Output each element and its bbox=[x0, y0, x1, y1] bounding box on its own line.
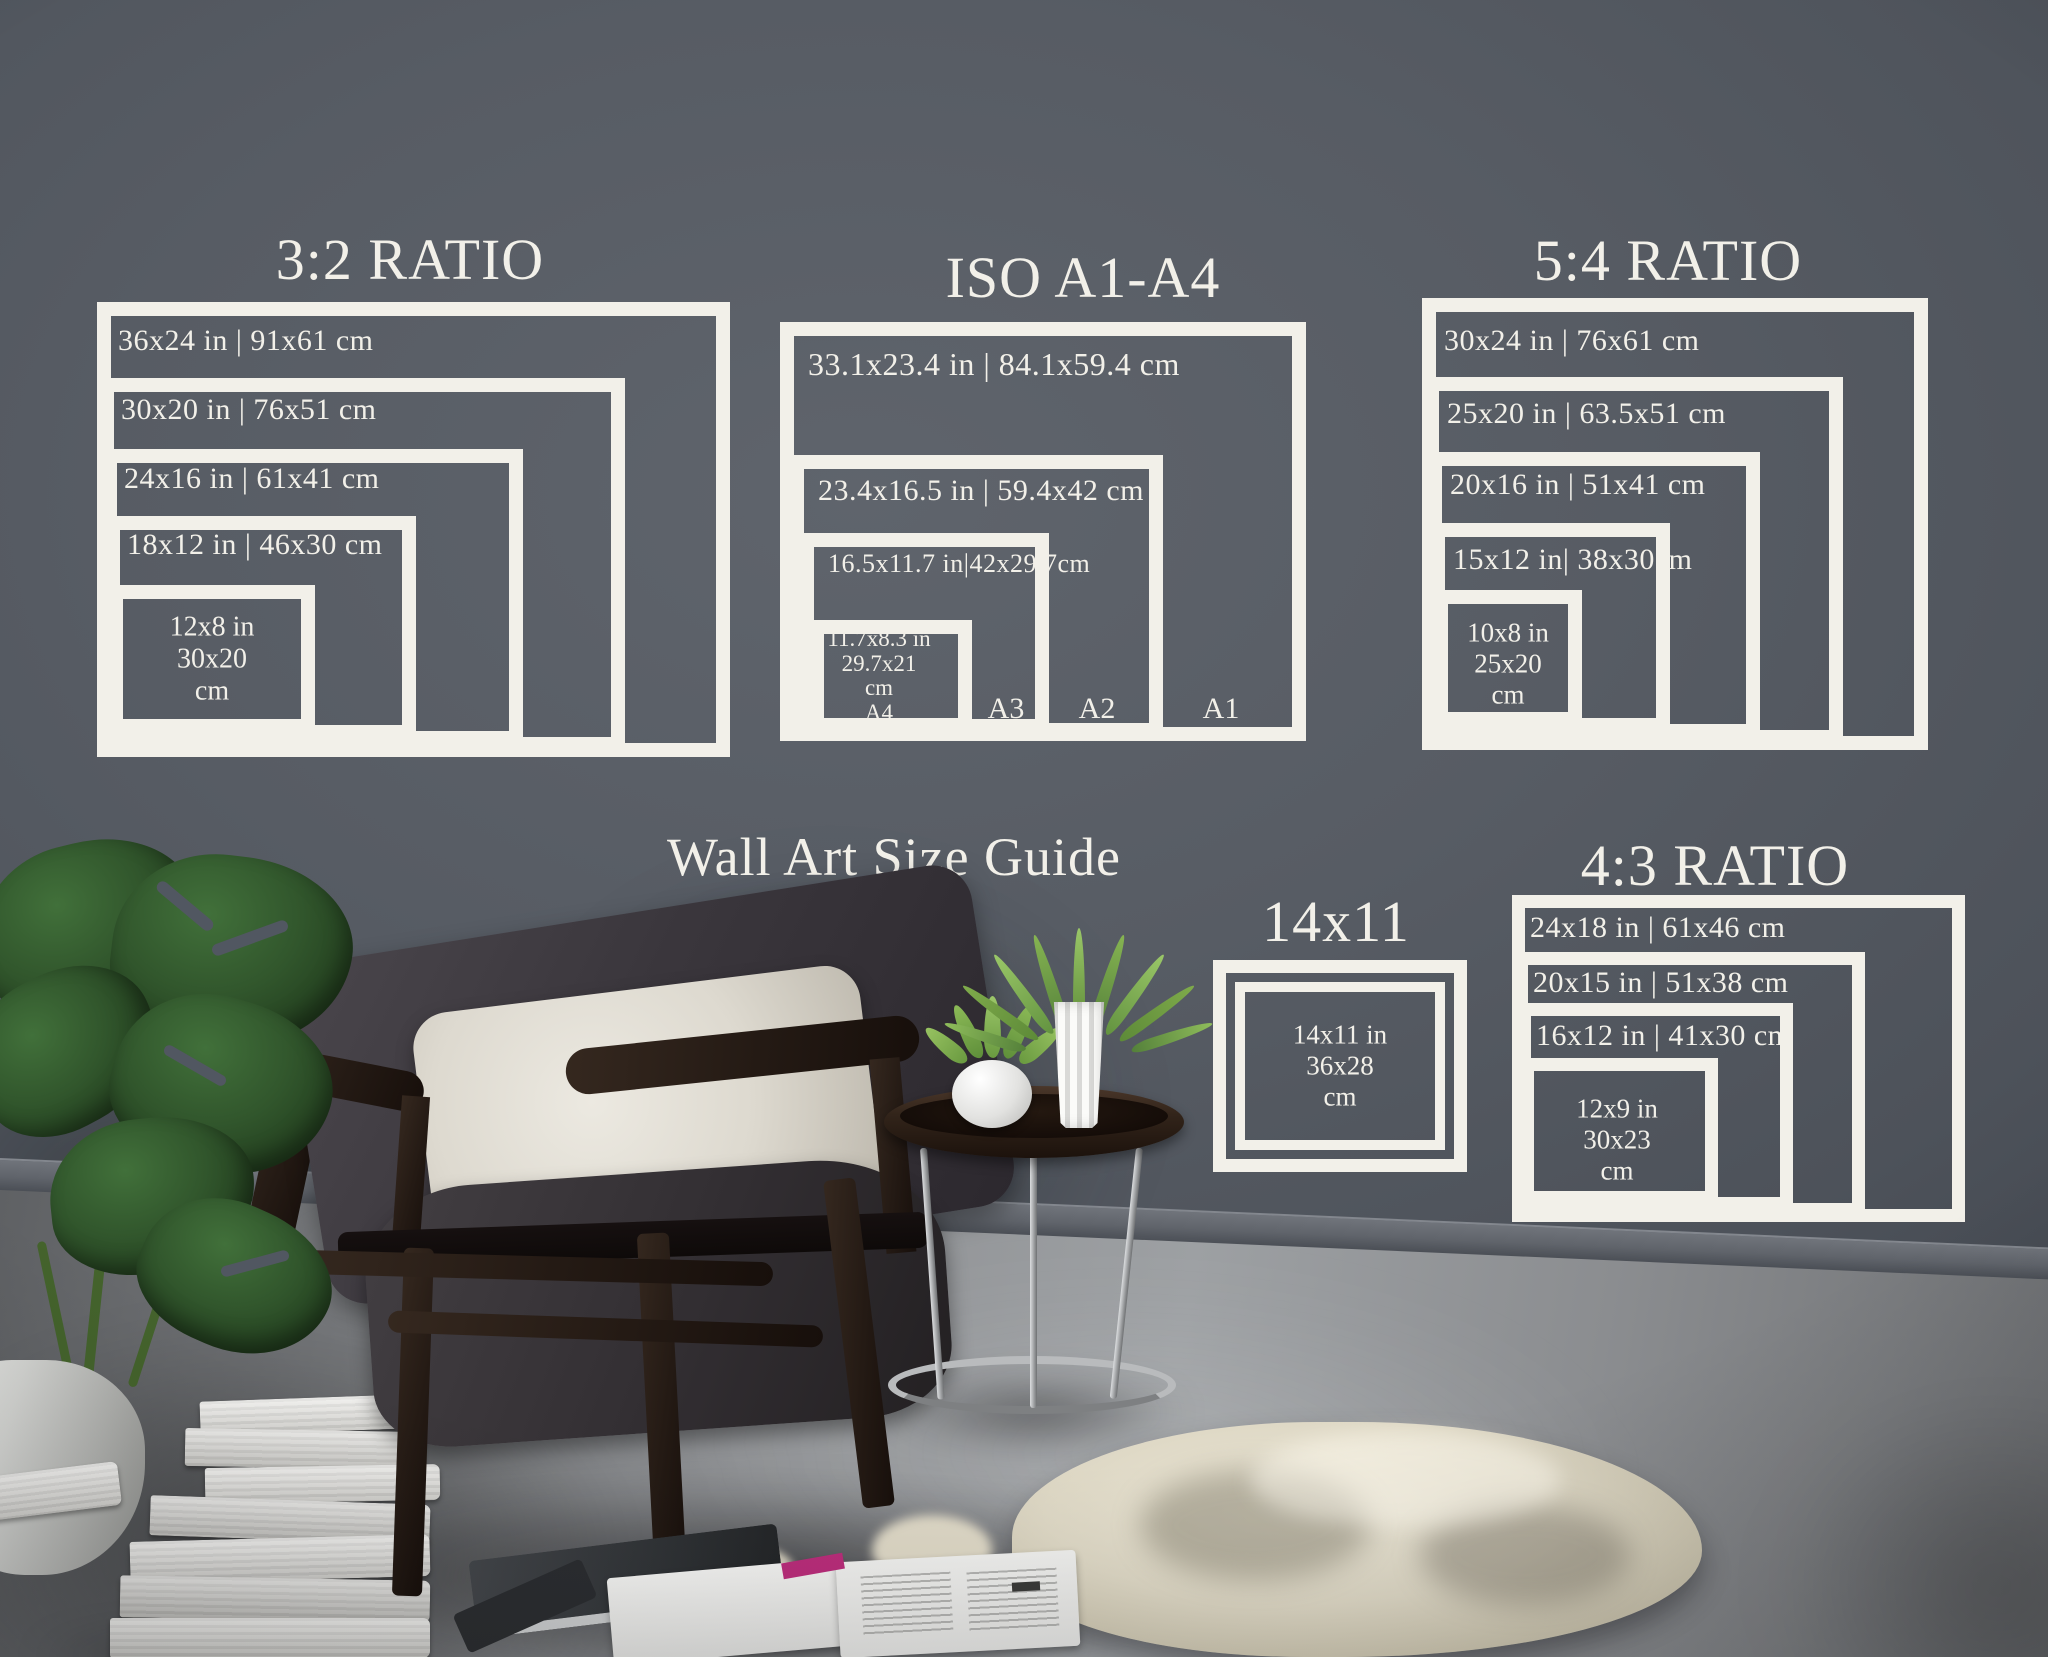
section-title-ratio-5-4: 5:4 RATIO bbox=[1534, 227, 1802, 294]
size-label-a1: 33.1x23.4 in | 84.1x59.4 cm bbox=[808, 346, 1180, 383]
section-title-ratio-3-2: 3:2 RATIO bbox=[276, 226, 544, 293]
paper-label-a1: A1 bbox=[1203, 692, 1240, 727]
table-leg bbox=[1030, 1152, 1037, 1408]
size-label-16x12: 16x12 in | 41x30 cm bbox=[1536, 1019, 1792, 1053]
magazine-text-column bbox=[860, 1572, 953, 1639]
size-label-24x18: 24x18 in | 61x46 cm bbox=[1530, 911, 1786, 945]
book bbox=[185, 1428, 426, 1470]
magazine-headline-bar bbox=[1012, 1581, 1040, 1591]
floor-dark-patch-right bbox=[1765, 1386, 2048, 1657]
paper-label-a2: A2 bbox=[1079, 692, 1116, 727]
size-label-25x20: 25x20 in | 63.5x51 cm bbox=[1447, 397, 1726, 431]
section-title-iso: ISO A1-A4 bbox=[946, 244, 1221, 311]
book bbox=[110, 1618, 430, 1657]
size-label-12x8: 12x8 in 30x20 cm bbox=[170, 612, 255, 709]
size-label-a4: 11.7x8.3 in 29.7x21 cm A4 bbox=[827, 627, 930, 725]
size-label-20x15: 20x15 in | 51x38 cm bbox=[1533, 966, 1789, 1000]
table-tray-inset bbox=[900, 1094, 1168, 1138]
size-label-36x24: 36x24 in | 91x61 cm bbox=[118, 324, 374, 358]
size-label-24x16: 24x16 in | 61x41 cm bbox=[124, 462, 380, 496]
paper-label-a3: A3 bbox=[988, 692, 1025, 727]
succulent-pot bbox=[952, 1060, 1032, 1128]
size-label-15x12: 15x12 in| 38x30cm bbox=[1453, 543, 1693, 577]
size-label-30x20: 30x20 in | 76x51 cm bbox=[121, 393, 377, 427]
magazine-text-column bbox=[966, 1568, 1059, 1635]
size-label-10x8: 10x8 in 25x20 cm bbox=[1467, 617, 1549, 710]
book bbox=[120, 1575, 431, 1622]
size-label-18x12: 18x12 in | 46x30 cm bbox=[127, 528, 383, 562]
section-title-ratio-4-3: 4:3 RATIO bbox=[1581, 832, 1849, 899]
size-label-30x24: 30x24 in | 76x61 cm bbox=[1444, 324, 1700, 358]
size-label-a2: 23.4x16.5 in | 59.4x42 cm bbox=[818, 474, 1144, 508]
size-label-14x11: 14x11 in 36x28 cm bbox=[1293, 1019, 1387, 1112]
rug-highlight bbox=[1250, 1432, 1560, 1527]
room-scene: 3:2 RATIO 36x24 in | 91x61 cm 30x20 in |… bbox=[0, 0, 2048, 1657]
section-title-14x11: 14x11 bbox=[1262, 888, 1410, 955]
size-label-12x9: 12x9 in 30x23 cm bbox=[1576, 1093, 1658, 1186]
size-label-a3: 16.5x11.7 in|42x29.7cm bbox=[828, 549, 1090, 579]
size-label-20x16: 20x16 in | 51x41 cm bbox=[1450, 468, 1706, 502]
